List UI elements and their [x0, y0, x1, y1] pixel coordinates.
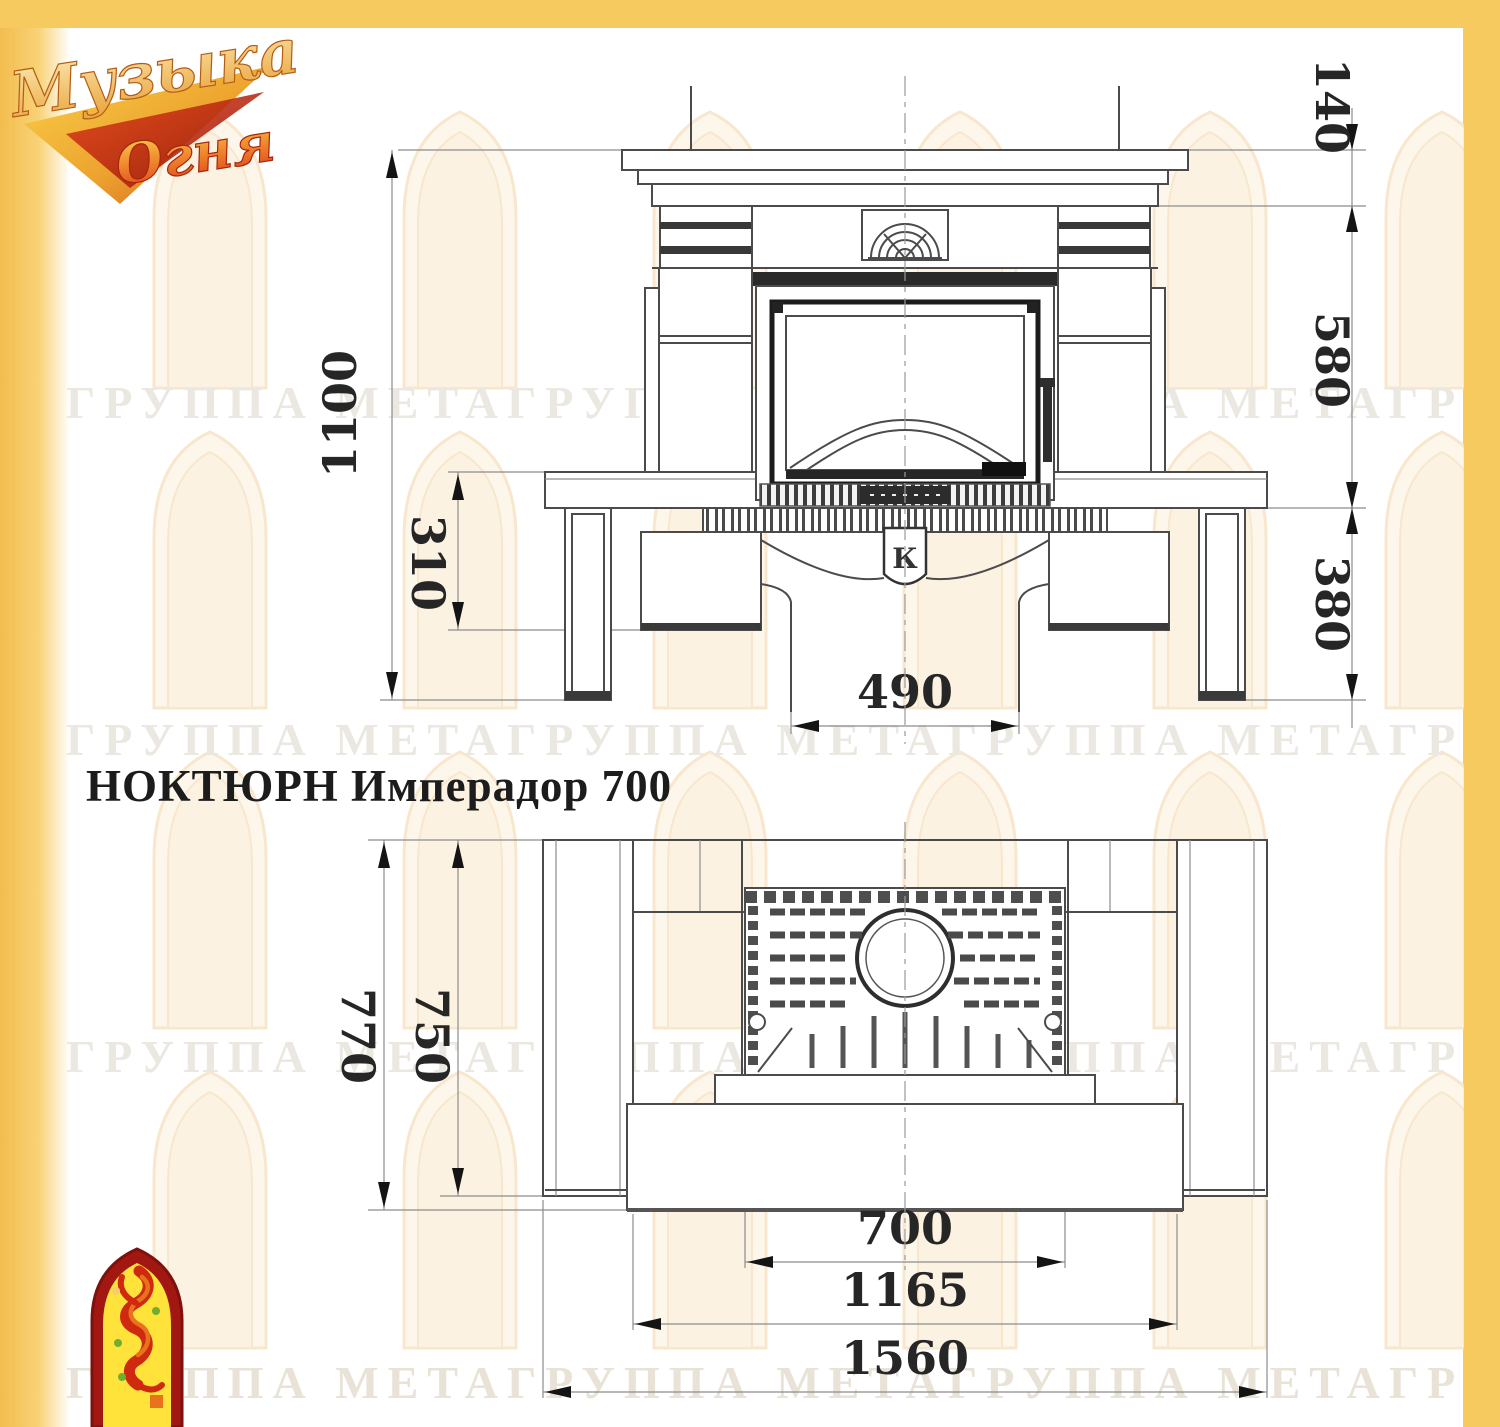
arch-flame-emblem: [92, 1249, 182, 1427]
dim-total-width: 1560: [841, 1331, 969, 1385]
dim-base-height: 380: [1305, 556, 1359, 652]
dim-cornice-height: 140: [1305, 58, 1359, 154]
dim-body-depth: 750: [405, 988, 459, 1084]
pedestal-cheek-left: [641, 532, 761, 630]
dim-plinth-height: 310: [401, 515, 455, 611]
firebox-door: [756, 286, 1055, 500]
dim-firebox-height: 580: [1305, 312, 1359, 408]
watermark-text-row: ГРУППА МЕТАГРУППА МЕТАГРУППА МЕТАГРУППА …: [66, 1357, 1500, 1408]
door-handle: [1043, 386, 1052, 462]
watermark-text-row: ГРУППА МЕТАГРУППА МЕТАГРУППА МЕТАГРУППА …: [66, 714, 1500, 765]
foot-right-edge: [1019, 584, 1049, 712]
page: { "frame": { "color": "#f7ca60" }, "bran…: [0, 0, 1500, 1427]
door-hinge-icon: [772, 302, 783, 313]
base-left: [565, 508, 611, 700]
base-right: [1199, 508, 1245, 700]
dim-total-depth: 770: [331, 988, 385, 1084]
page-title: НОКТЮРН Имперадор 700: [86, 760, 672, 812]
door-hinge-icon: [1027, 302, 1038, 313]
technical-drawing: ГРУППА МЕТАГРУППА МЕТАГРУППА МЕТАГРУППА …: [0, 0, 1500, 1427]
dim-total-height: 1100: [313, 350, 367, 478]
dim-body-width: 1165: [841, 1263, 969, 1317]
brand-logo: Музыка Огня: [3, 14, 303, 204]
pedestal-cheek-right: [1049, 532, 1169, 630]
